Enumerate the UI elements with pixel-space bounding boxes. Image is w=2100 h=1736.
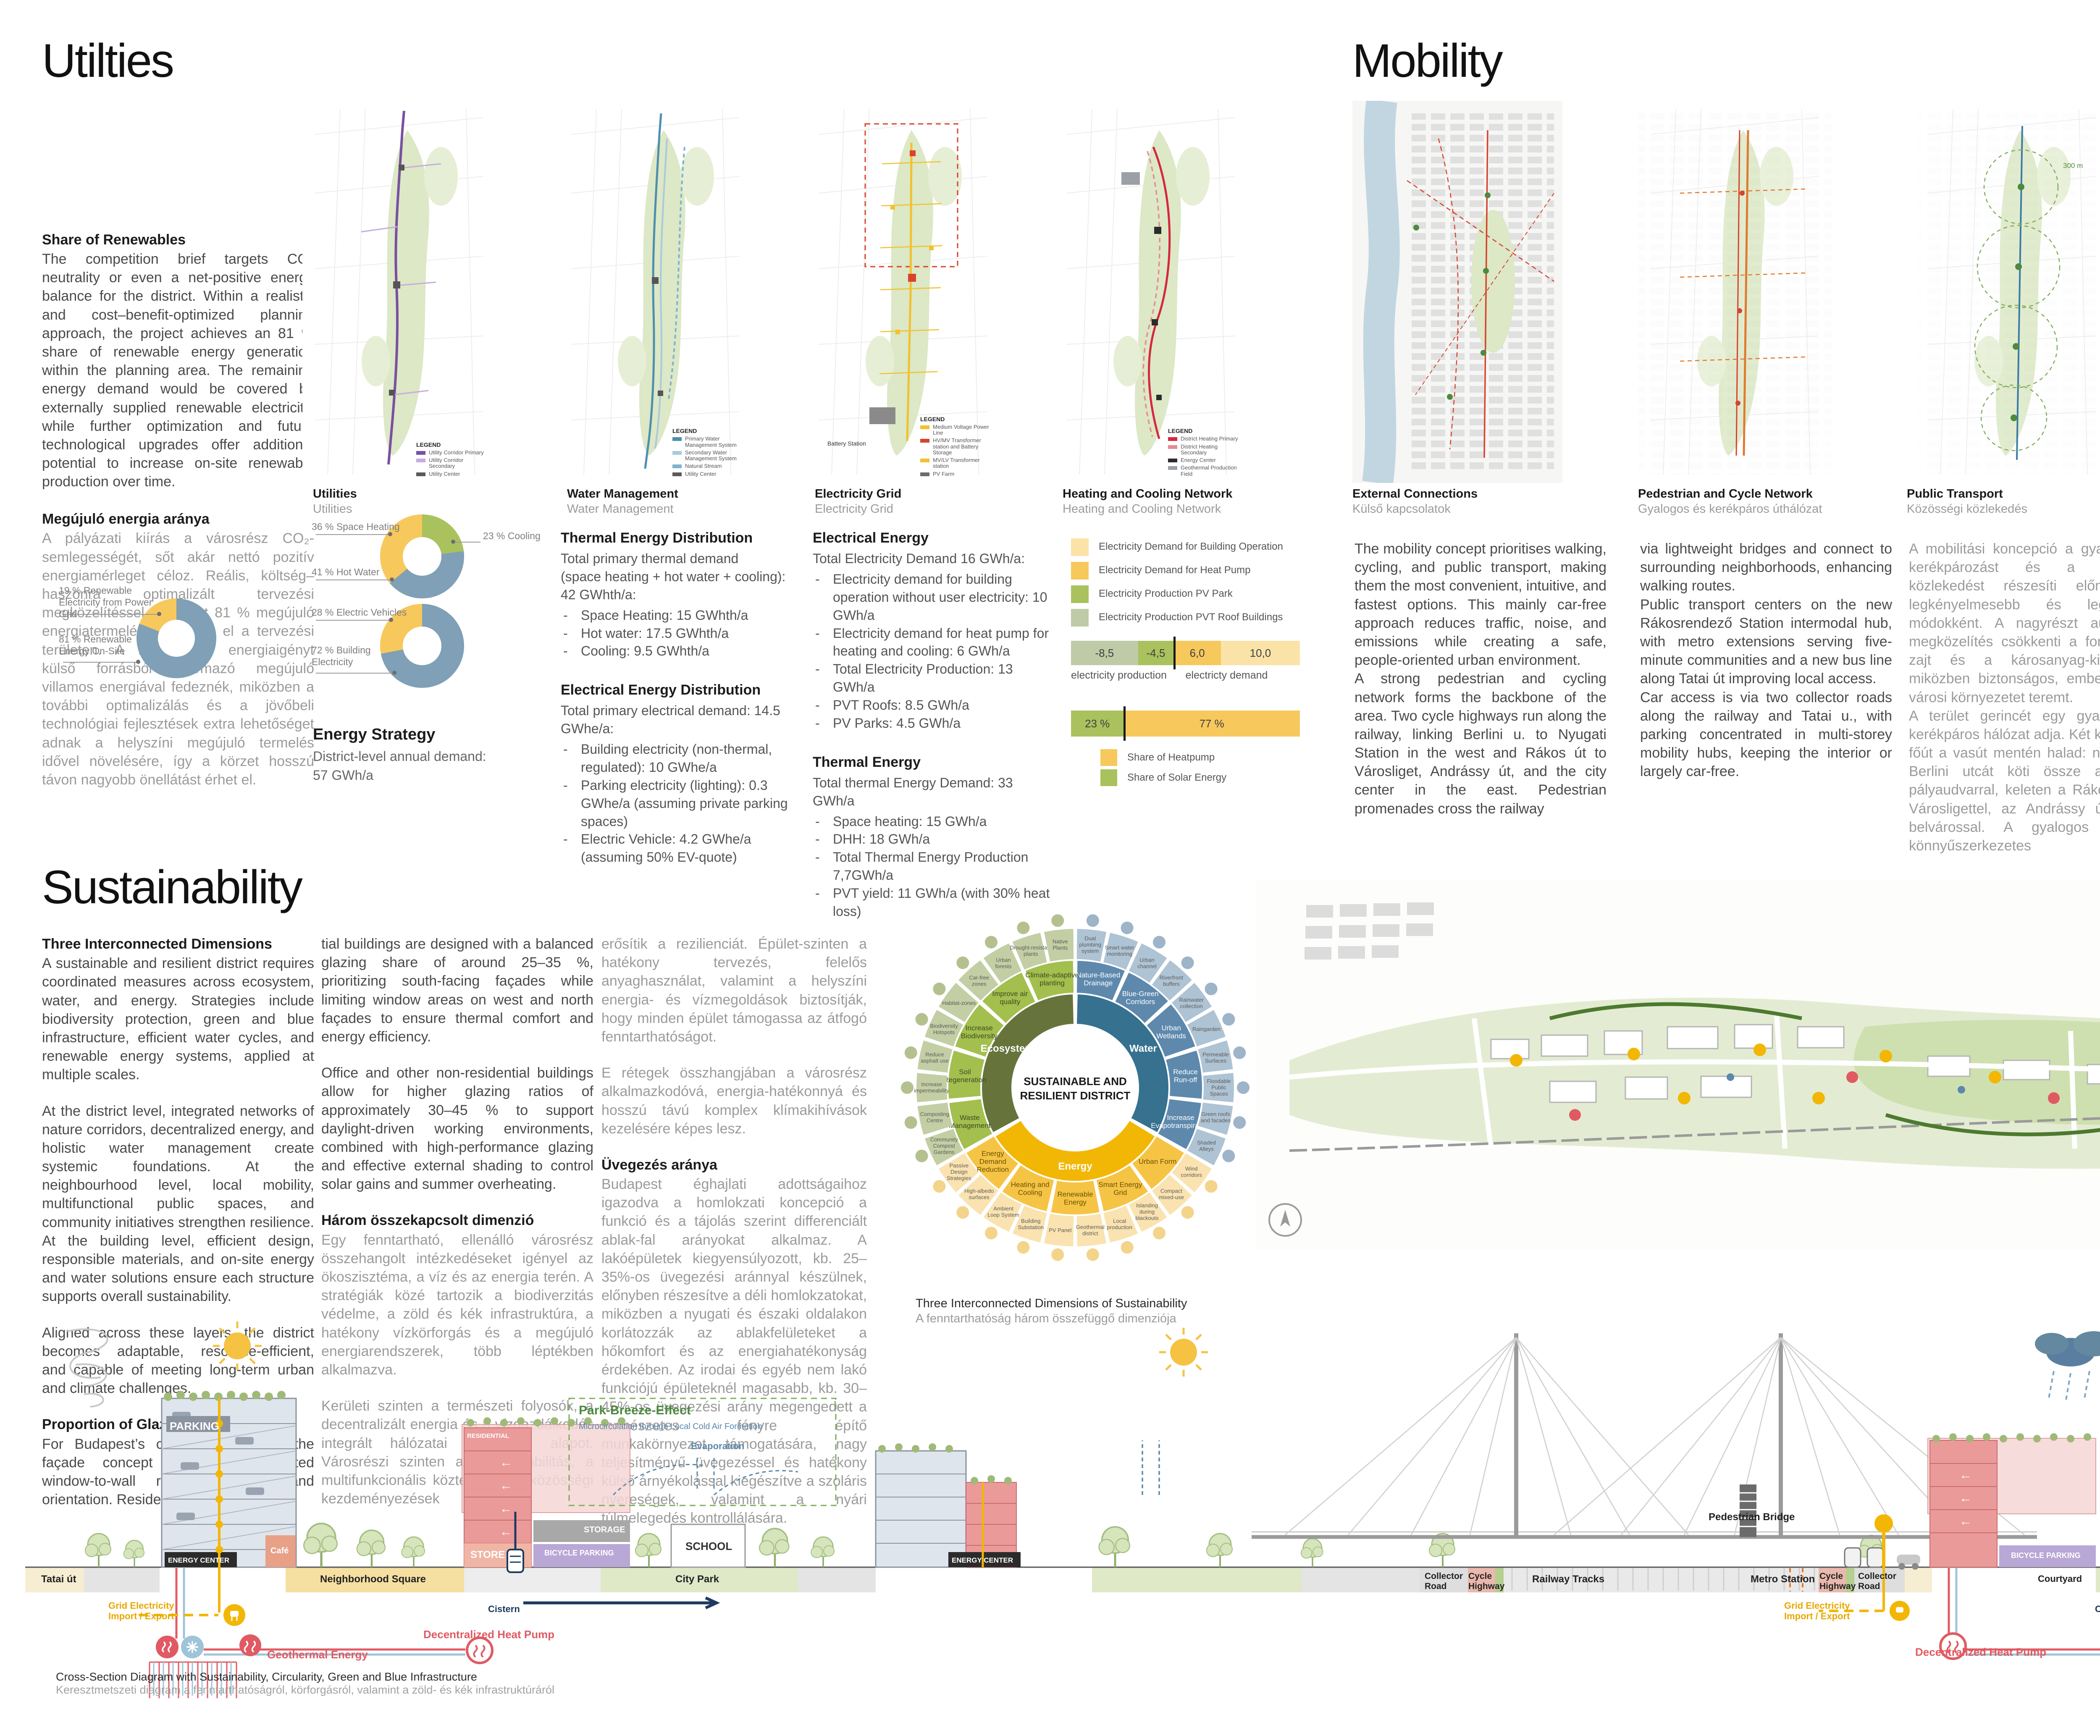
cross-section-label: STORE <box>470 1550 505 1561</box>
cross-section-label: Cistern <box>488 1604 520 1615</box>
cross-section-label: Railway Tracks <box>1532 1574 1604 1585</box>
cross-section-label: Park-Breeze-Effect <box>579 1403 691 1418</box>
cross-section-label: Microcirculation through Local Cold Air … <box>579 1422 814 1431</box>
cross-section-label: Tatai út <box>41 1574 76 1585</box>
cross-section-label: Collector Road <box>1858 1571 1896 1591</box>
cross-section-label: Cycle Highway <box>1468 1571 1504 1591</box>
cross-section-label: PARKING <box>170 1420 219 1432</box>
cross-section-label: STORAGE <box>584 1525 625 1534</box>
footer-caption: Cross-Section Diagram with Sustainabilit… <box>56 1670 554 1697</box>
cross-section-label: Café <box>270 1546 289 1555</box>
cross-section-label: BICYCLE PARKING <box>544 1549 614 1557</box>
cross-section-label: Grid Electricity Import / Export <box>1784 1601 1850 1621</box>
cross-section-labels: Park-Breeze-EffectMicrocirculation throu… <box>0 0 2100 1736</box>
cross-section-label: Courtyard <box>2038 1574 2082 1584</box>
cross-section-label: Cycle Highway <box>1819 1571 1856 1591</box>
cross-section-label: Evaporation <box>691 1441 744 1452</box>
cross-section-label: RESIDENTIAL <box>467 1433 509 1440</box>
cross-section-label: Cistern <box>2095 1604 2100 1615</box>
cross-section-label: ENERGY CENTER <box>168 1556 229 1564</box>
cross-section-label: Decentralized Heat Pump <box>423 1628 554 1641</box>
cross-section-label: Grid Electricity Import / Export <box>108 1601 174 1621</box>
cross-section-label: City Park <box>675 1574 719 1585</box>
cross-section-label: BICYCLE PARKING <box>2011 1551 2081 1560</box>
cross-section-label: ENERGY CENTER <box>952 1556 1013 1564</box>
cross-section-label: Geothermal Energy <box>267 1649 368 1661</box>
cross-section-label: Collector Road <box>1425 1571 1463 1591</box>
presentation-board: Utilties Share of Renewables The competi… <box>0 0 2100 1736</box>
cross-section-label: Neighborhood Square <box>320 1574 426 1585</box>
cross-section-label: Decentralized Heat Pump <box>1915 1646 2046 1658</box>
cross-section-label: Metro Station <box>1751 1574 1815 1585</box>
cross-section-label: SCHOOL <box>685 1540 732 1552</box>
cross-section-label: Pedestrian Bridge <box>1709 1512 1795 1523</box>
